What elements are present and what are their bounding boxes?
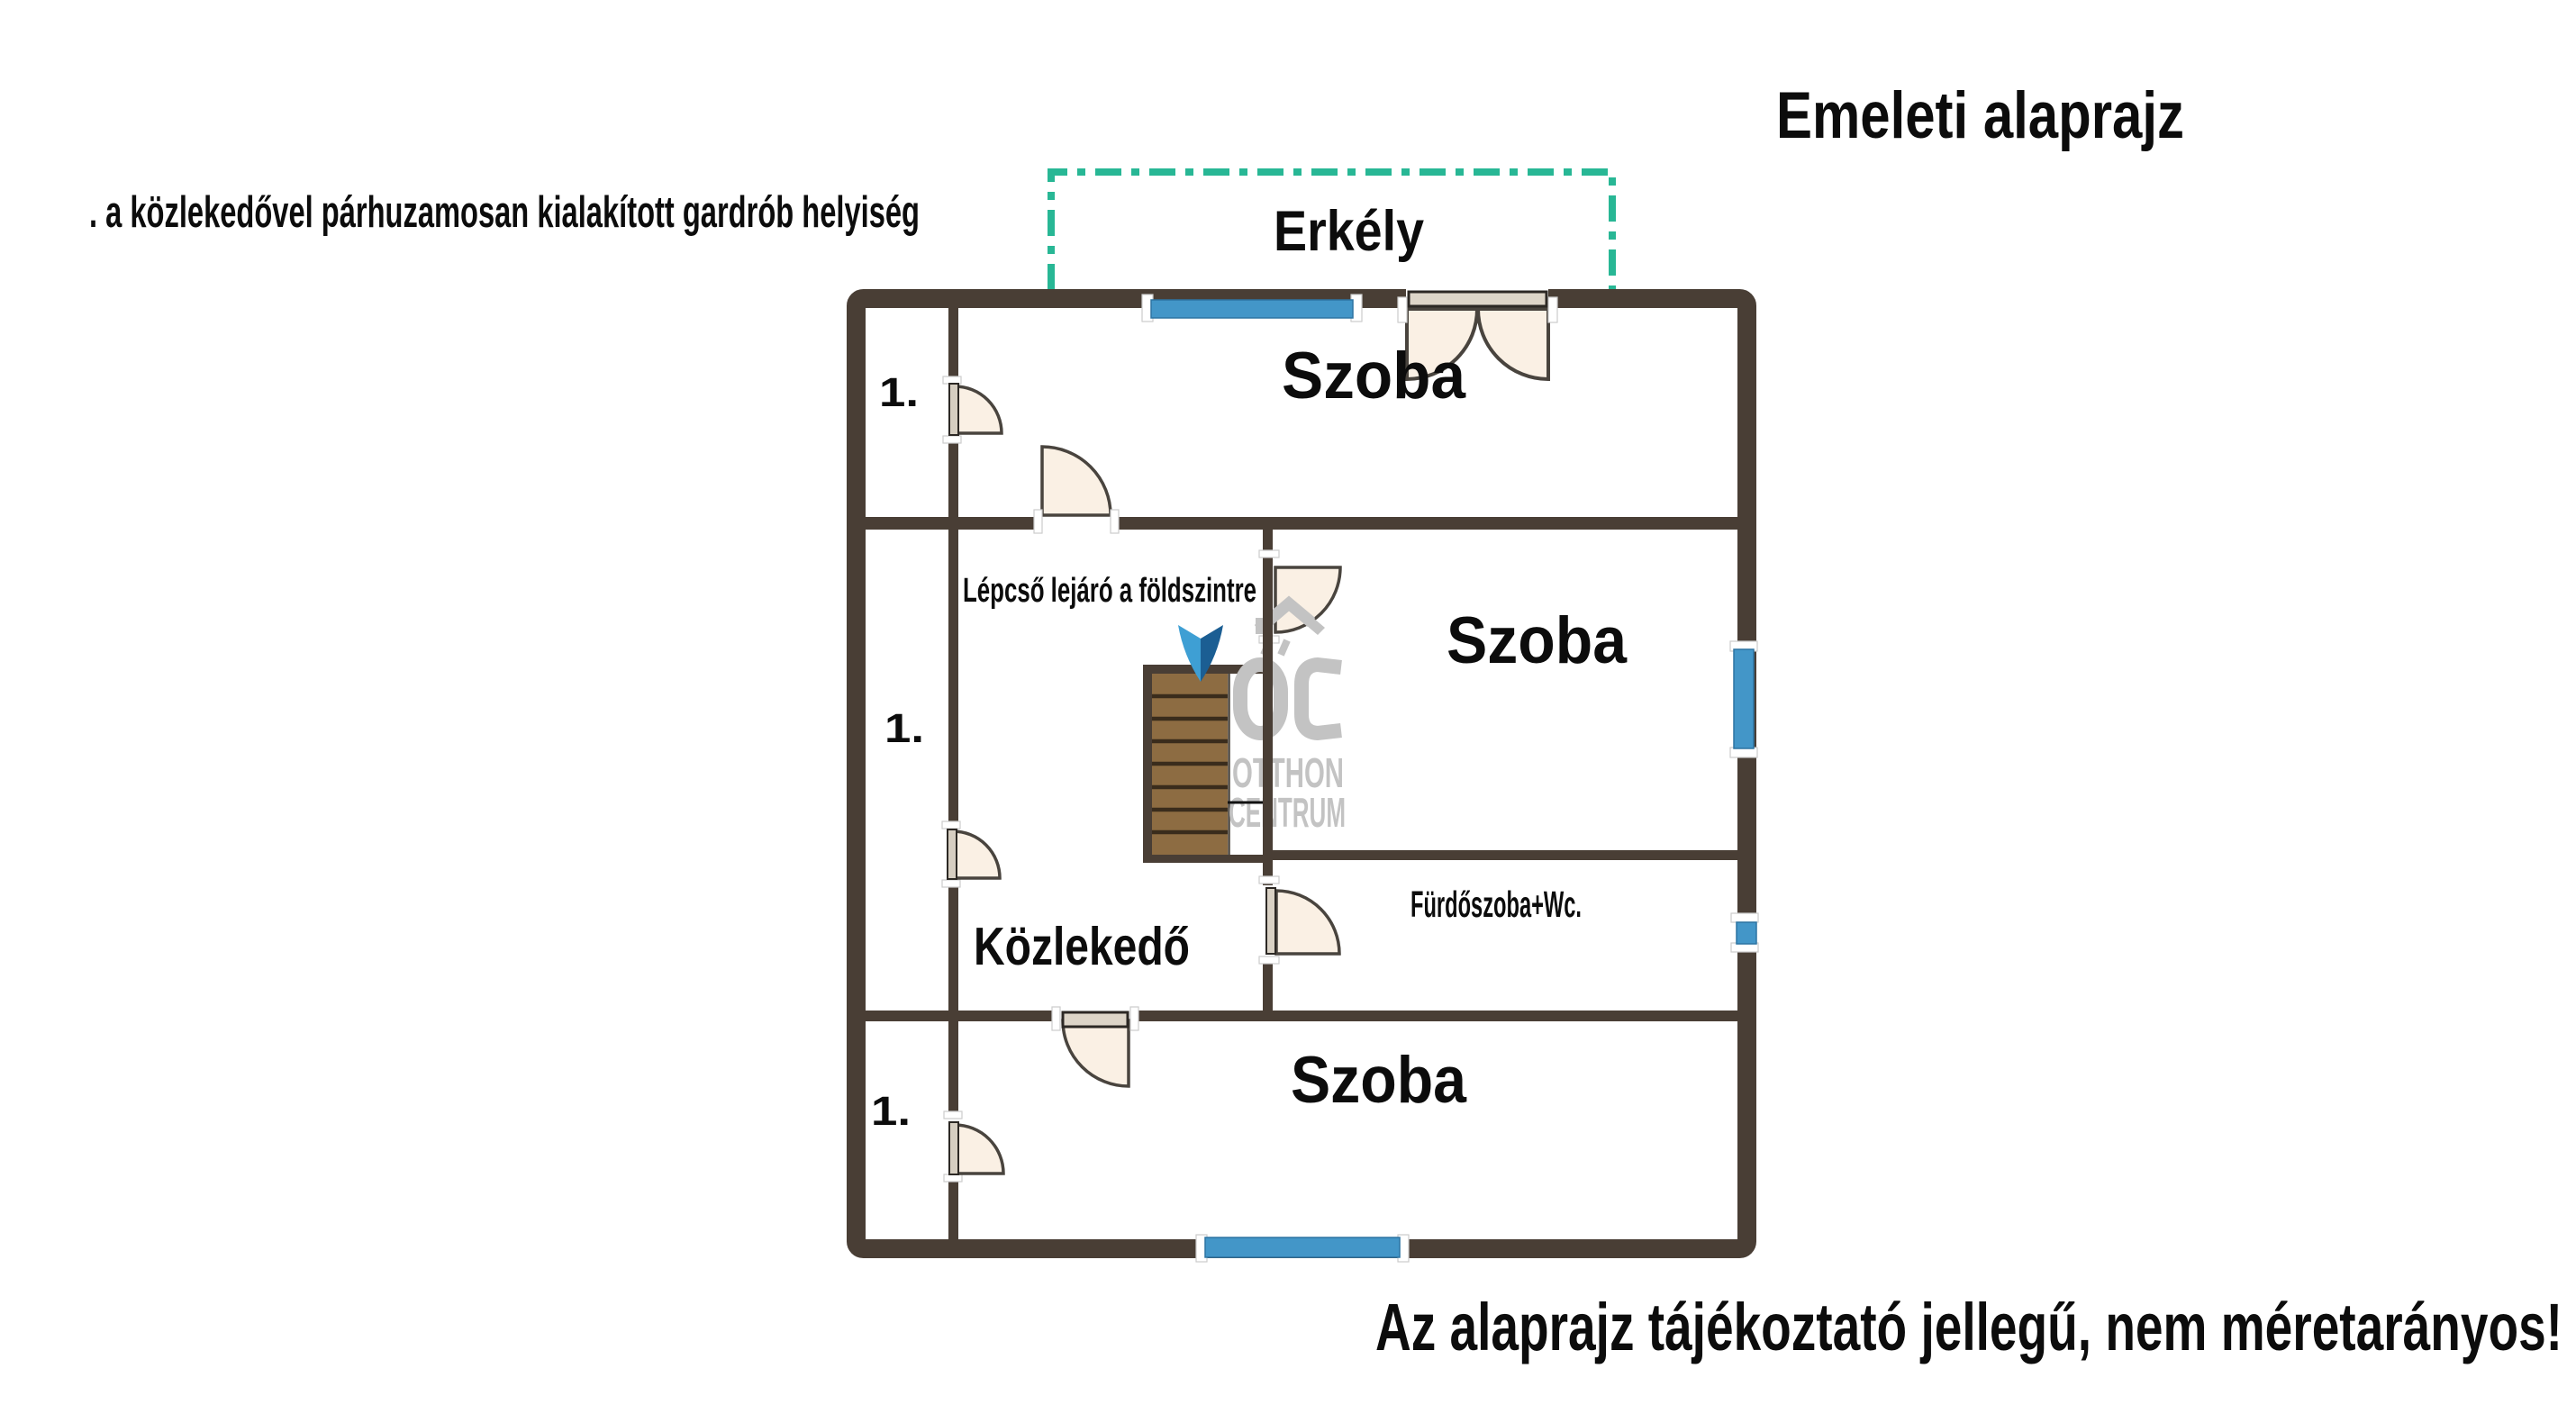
svg-text:Közlekedő: Közlekedő: [974, 917, 1190, 976]
svg-text:CENTRUM: CENTRUM: [1229, 789, 1346, 836]
svg-text:1.: 1.: [871, 1088, 911, 1134]
svg-text:Szoba: Szoba: [1282, 340, 1466, 412]
svg-text:. a közlekedővel párhuzamosan: . a közlekedővel párhuzamosan kialakítot…: [89, 188, 920, 237]
svg-text:Szoba: Szoba: [1291, 1044, 1467, 1117]
svg-text:Emeleti alaprajz: Emeleti alaprajz: [1776, 79, 2184, 152]
svg-text:1.: 1.: [879, 369, 919, 415]
svg-text:Lépcső lejáró a földszintre: Lépcső lejáró a földszintre: [963, 572, 1256, 610]
svg-text:1.: 1.: [884, 705, 924, 751]
svg-text:Erkély: Erkély: [1274, 200, 1424, 263]
svg-text:Az alaprajz tájékoztató jelleg: Az alaprajz tájékoztató jellegű, nem mér…: [1375, 1290, 2562, 1364]
svg-text:Fürdőszoba+Wc.: Fürdőszoba+Wc.: [1410, 884, 1582, 925]
svg-text:Szoba: Szoba: [1447, 604, 1628, 677]
